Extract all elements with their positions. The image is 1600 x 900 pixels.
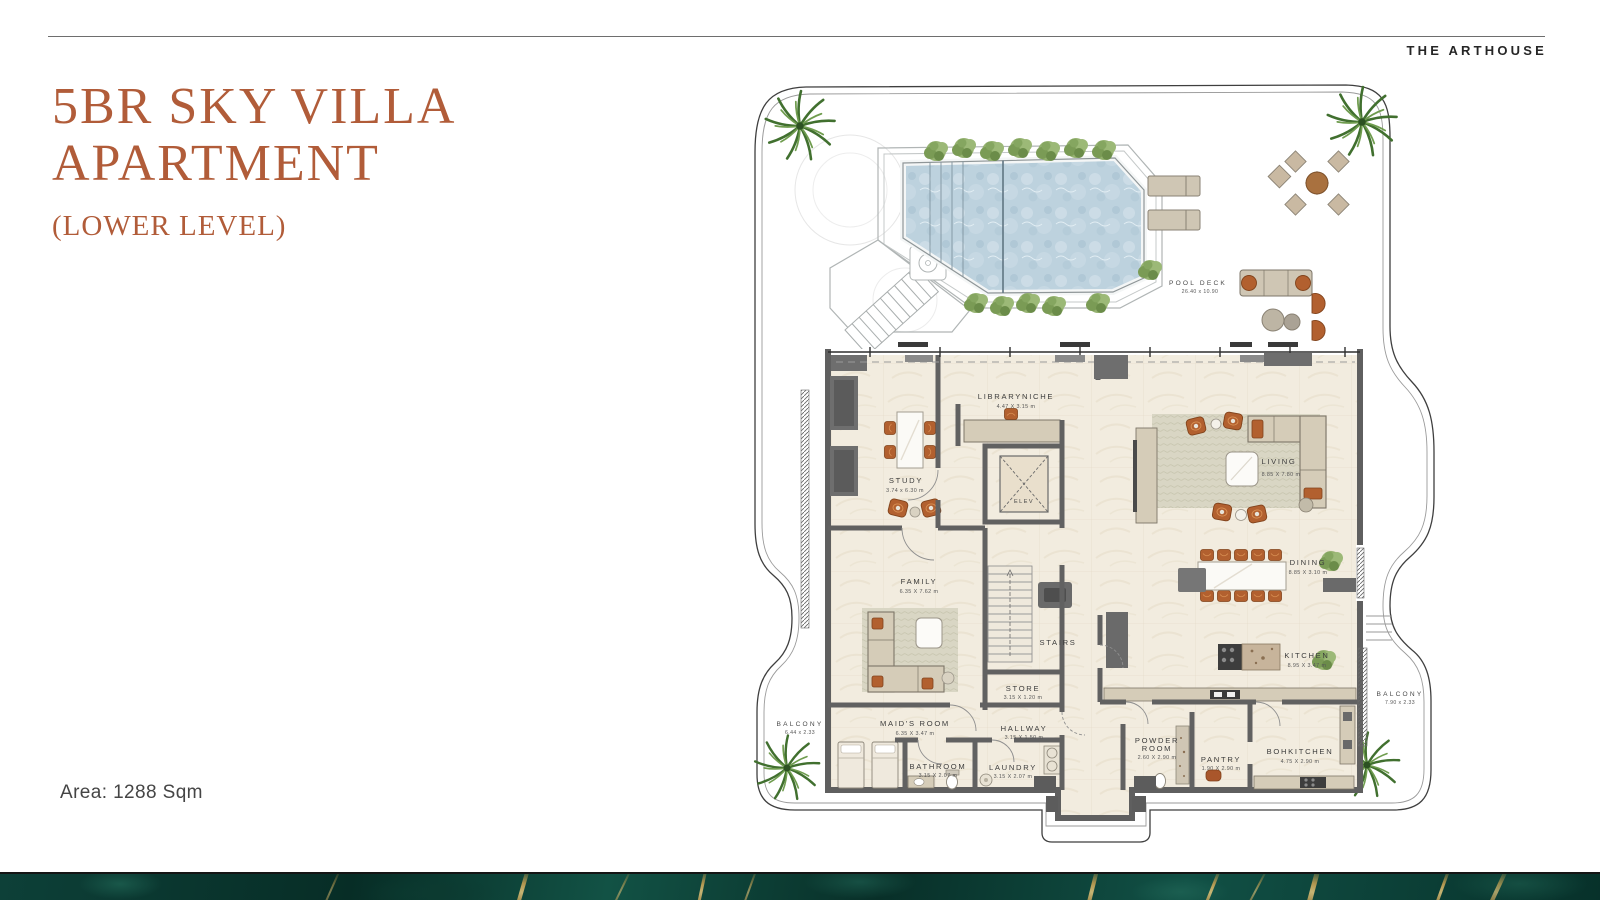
floor-plan: POOL DECK 26.40 x 10.90 bbox=[735, 50, 1560, 850]
svg-text:LIBRARYNICHE: LIBRARYNICHE bbox=[978, 392, 1054, 401]
elevator-label: ELEV bbox=[1014, 499, 1034, 505]
svg-text:3.15 X 2.07 m: 3.15 X 2.07 m bbox=[919, 773, 958, 779]
svg-text:BATHROOM: BATHROOM bbox=[910, 762, 967, 771]
svg-text:6.44 x 2.33: 6.44 x 2.33 bbox=[785, 730, 815, 736]
svg-text:7.90 x 2.33: 7.90 x 2.33 bbox=[1385, 700, 1415, 706]
area-note: Area: 1288 Sqm bbox=[60, 782, 203, 804]
page-title-line1: 5BR SKY VILLA bbox=[52, 78, 456, 135]
svg-text:PANTRY: PANTRY bbox=[1201, 755, 1241, 764]
svg-text:LAUNDRY: LAUNDRY bbox=[989, 763, 1037, 772]
svg-text:3.74 x 6.30 m: 3.74 x 6.30 m bbox=[886, 488, 924, 494]
svg-text:8.95 X 3.47 m: 8.95 X 3.47 m bbox=[1288, 663, 1327, 669]
page-subtitle: (LOWER LEVEL) bbox=[52, 210, 286, 243]
svg-text:ROOM: ROOM bbox=[1142, 744, 1172, 753]
svg-text:HALLWAY: HALLWAY bbox=[1001, 724, 1048, 733]
room-stairs: STAIRS bbox=[1039, 638, 1076, 647]
gold-vein bbox=[1085, 872, 1100, 900]
gold-vein bbox=[695, 872, 707, 900]
svg-text:4.75 X 2.90 m: 4.75 X 2.90 m bbox=[1281, 759, 1320, 765]
gold-vein bbox=[1304, 872, 1320, 900]
svg-text:BALCONY: BALCONY bbox=[777, 721, 824, 728]
svg-text:LIVING: LIVING bbox=[1261, 457, 1296, 466]
gold-vein bbox=[321, 872, 341, 900]
gold-vein bbox=[1202, 872, 1221, 900]
svg-text:STUDY: STUDY bbox=[889, 476, 923, 485]
svg-text:STAIRS: STAIRS bbox=[1039, 638, 1076, 647]
svg-text:DINING: DINING bbox=[1290, 558, 1327, 567]
svg-text:KITCHEN: KITCHEN bbox=[1284, 651, 1329, 660]
svg-text:3.15 X 1.20 m: 3.15 X 1.20 m bbox=[1004, 695, 1043, 701]
svg-text:4.47 X 3.15 m: 4.47 X 3.15 m bbox=[997, 404, 1036, 410]
fridge-column bbox=[1106, 612, 1128, 668]
header-rule bbox=[48, 36, 1545, 37]
footer-marble-band bbox=[0, 872, 1600, 900]
svg-text:FAMILY: FAMILY bbox=[901, 577, 938, 586]
svg-text:BOHKITCHEN: BOHKITCHEN bbox=[1267, 747, 1334, 756]
dining-sideboard bbox=[1323, 578, 1360, 592]
gold-vein bbox=[1433, 872, 1451, 900]
gold-vein bbox=[610, 872, 631, 900]
gold-vein bbox=[1486, 872, 1508, 900]
svg-text:8.85 X 3.10 m: 8.85 X 3.10 m bbox=[1289, 570, 1328, 576]
svg-text:MAID'S ROOM: MAID'S ROOM bbox=[880, 719, 950, 728]
room-pantry: PANTRY 1.90 X 2.90 m bbox=[1201, 755, 1241, 772]
pool-deck-dims: 26.40 x 10.90 bbox=[1182, 289, 1219, 295]
svg-text:3.15 X 2.07 m: 3.15 X 2.07 m bbox=[994, 774, 1033, 780]
svg-text:6.35 X 3.47 m: 6.35 X 3.47 m bbox=[896, 731, 935, 737]
svg-text:6.35 X 7.62 m: 6.35 X 7.62 m bbox=[900, 589, 939, 595]
room-hallway: HALLWAY 3.15 X 1.50 m bbox=[1001, 724, 1048, 741]
room-store: STORE 3.15 X 1.20 m bbox=[1004, 684, 1043, 701]
svg-text:3.15 X 1.50 m: 3.15 X 1.50 m bbox=[1005, 735, 1044, 741]
page-title: 5BR SKY VILLA APARTMENT bbox=[52, 78, 456, 192]
room-laundry: LAUNDRY 3.15 X 2.07 m bbox=[989, 763, 1037, 780]
gold-vein bbox=[1245, 872, 1267, 900]
cabinet bbox=[1178, 568, 1206, 592]
left-railing bbox=[801, 390, 809, 628]
brochure-page: THE ARTHOUSE 5BR SKY VILLA APARTMENT (LO… bbox=[0, 0, 1600, 900]
svg-text:1.90 X 2.90 m: 1.90 X 2.90 m bbox=[1202, 766, 1241, 772]
svg-text:STORE: STORE bbox=[1006, 684, 1041, 693]
svg-text:BALCONY: BALCONY bbox=[1377, 691, 1424, 698]
gold-vein bbox=[514, 872, 530, 900]
page-title-line2: APARTMENT bbox=[52, 135, 456, 192]
pool-deck-label: POOL DECK bbox=[1169, 280, 1227, 287]
svg-text:2.60 X 2.90 m: 2.60 X 2.90 m bbox=[1138, 755, 1177, 761]
gold-vein bbox=[741, 872, 758, 900]
svg-text:8.85 X 7.80 m: 8.85 X 7.80 m bbox=[1262, 472, 1301, 478]
